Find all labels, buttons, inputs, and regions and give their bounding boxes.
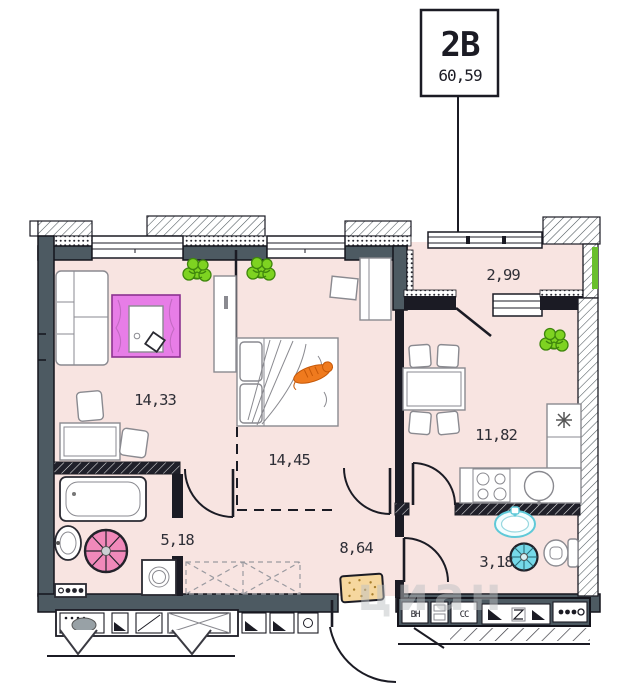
bed: [237, 338, 338, 426]
washing-machine: [142, 560, 176, 595]
stool-pink: [85, 530, 127, 572]
sofa: [56, 271, 108, 365]
cabinet: [360, 258, 391, 320]
window-kitchen-balcony: [493, 294, 542, 316]
vent-symbol: [556, 412, 572, 428]
chair: [437, 344, 459, 367]
neighbor-door: [60, 630, 97, 654]
neighbor-door: [172, 630, 211, 654]
balcony-glazing: [428, 232, 542, 248]
chair: [409, 411, 432, 435]
door-arc-entrance: [330, 627, 396, 682]
wall-left: [38, 236, 54, 596]
toilet: [544, 539, 578, 567]
dots-box: [553, 602, 587, 622]
balcony-green-strip: [592, 247, 598, 289]
area-label-bathroom: 5,18: [160, 531, 194, 549]
stool-cyan: [511, 544, 538, 571]
bathtub: [60, 477, 146, 521]
chair: [436, 411, 459, 435]
window-bedroom: [267, 236, 345, 258]
desk-chair: [76, 390, 103, 421]
radiator-icon: [55, 584, 86, 597]
unit-area: 60,59: [438, 66, 482, 85]
wall-shelf: [330, 276, 358, 300]
coffee-table: [129, 306, 165, 352]
wall-bath-top: [54, 462, 180, 474]
window-living: [92, 236, 183, 258]
wardrobe: [214, 276, 236, 372]
floor-plan: 2В 60,59: [0, 0, 623, 700]
area-label-living: 14,33: [134, 391, 176, 409]
desk: [60, 423, 120, 460]
shaft-cell: [298, 613, 318, 633]
bath-sink: [55, 526, 81, 560]
floor-plan-page: 2В 60,59: [0, 0, 623, 700]
area-label-kitchen: 11,82: [475, 426, 517, 444]
desk-chair: [119, 428, 149, 458]
area-label-bedroom: 14,45: [268, 451, 310, 469]
area-label-hallway: 8,64: [339, 539, 373, 557]
watermark: циан: [357, 567, 506, 621]
unit-code: 2В: [441, 25, 480, 65]
hatch-ticks: [450, 628, 590, 641]
area-label-balcony: 2,99: [486, 266, 520, 284]
dining-table: [403, 368, 465, 410]
counter-bottom: [460, 468, 581, 505]
counter-right: [547, 404, 581, 470]
chair: [409, 344, 431, 367]
